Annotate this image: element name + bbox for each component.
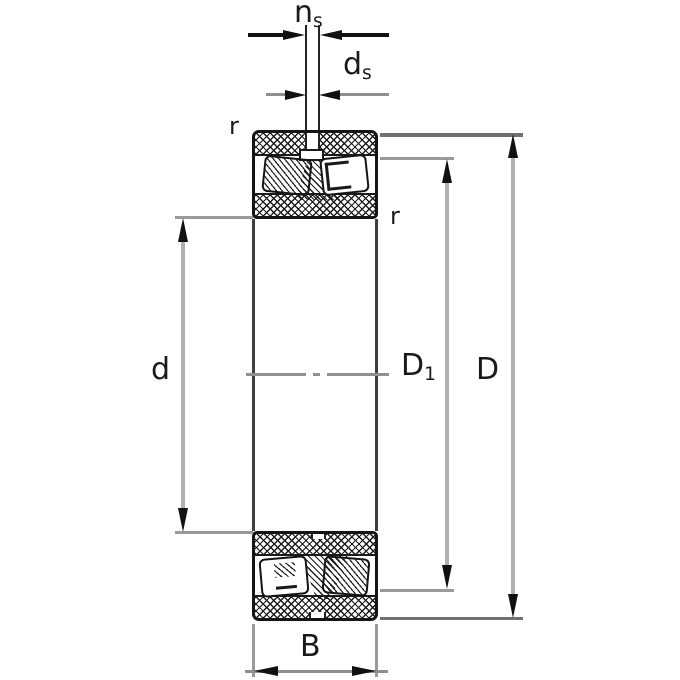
bearing-section-top xyxy=(252,130,378,219)
dim-ds-arrow-left xyxy=(285,90,306,100)
bore-notch-bottom xyxy=(311,534,326,539)
dim-D-line xyxy=(511,158,515,595)
bearing-dimension-drawing: ns ds r r xyxy=(0,0,680,680)
label-B: B xyxy=(300,632,321,662)
cage-top-right xyxy=(325,161,352,191)
lube-groove-notch-bottom xyxy=(309,612,326,618)
label-r-top: r xyxy=(229,114,239,138)
centerline-dot xyxy=(313,373,320,376)
dim-ns-line-right xyxy=(341,33,389,37)
centerline-dash-right xyxy=(327,373,389,376)
dim-D1-arrow-up xyxy=(442,159,452,183)
label-ds: ds xyxy=(343,50,372,84)
dim-B-arrow-left xyxy=(254,666,278,676)
label-d: d xyxy=(151,355,170,385)
label-D: D xyxy=(476,355,499,385)
cage-bottom-left-bar xyxy=(276,585,297,590)
label-r-inner: r xyxy=(390,204,400,228)
label-ds-sub: s xyxy=(362,63,372,84)
inner-raceway-line-bottom xyxy=(255,554,375,556)
cage-bottom-left-hatch xyxy=(274,562,296,578)
dim-ds-line-left xyxy=(266,93,286,96)
dim-ds-arrow-right xyxy=(319,90,340,100)
label-ds-base: d xyxy=(343,47,362,82)
dim-D1-line xyxy=(445,183,449,567)
label-D1: D1 xyxy=(401,351,436,385)
dim-B-arrow-right xyxy=(352,666,376,676)
dim-ds-line-right xyxy=(340,93,389,96)
roller-bottom-left xyxy=(258,555,309,598)
dim-d-line xyxy=(181,240,185,511)
dim-ns-arrow-left xyxy=(283,30,305,40)
dim-d-arrow-up xyxy=(178,218,188,242)
dim-d-arrow-down xyxy=(178,508,188,532)
label-D1-sub: 1 xyxy=(424,364,436,385)
label-D1-base: D xyxy=(401,348,424,383)
roller-bottom-right xyxy=(321,555,370,597)
bearing-section-bottom xyxy=(252,531,378,621)
inner-ring-top xyxy=(255,195,375,216)
centerline-dash-left xyxy=(246,373,306,376)
label-ns-base: n xyxy=(294,0,313,30)
roller-top-right xyxy=(319,154,370,197)
dim-D1-arrow-down xyxy=(442,565,452,589)
dim-ns-arrow-right xyxy=(320,30,342,40)
dim-D-ext-bottom xyxy=(380,617,523,620)
dim-D-ext-top xyxy=(380,133,523,137)
roller-top-left xyxy=(261,155,313,197)
dim-D-arrow-down xyxy=(508,594,518,618)
dim-D1-ext-bottom xyxy=(380,589,454,592)
dim-ns-line-left xyxy=(248,33,284,37)
dim-D-arrow-up xyxy=(508,134,518,158)
